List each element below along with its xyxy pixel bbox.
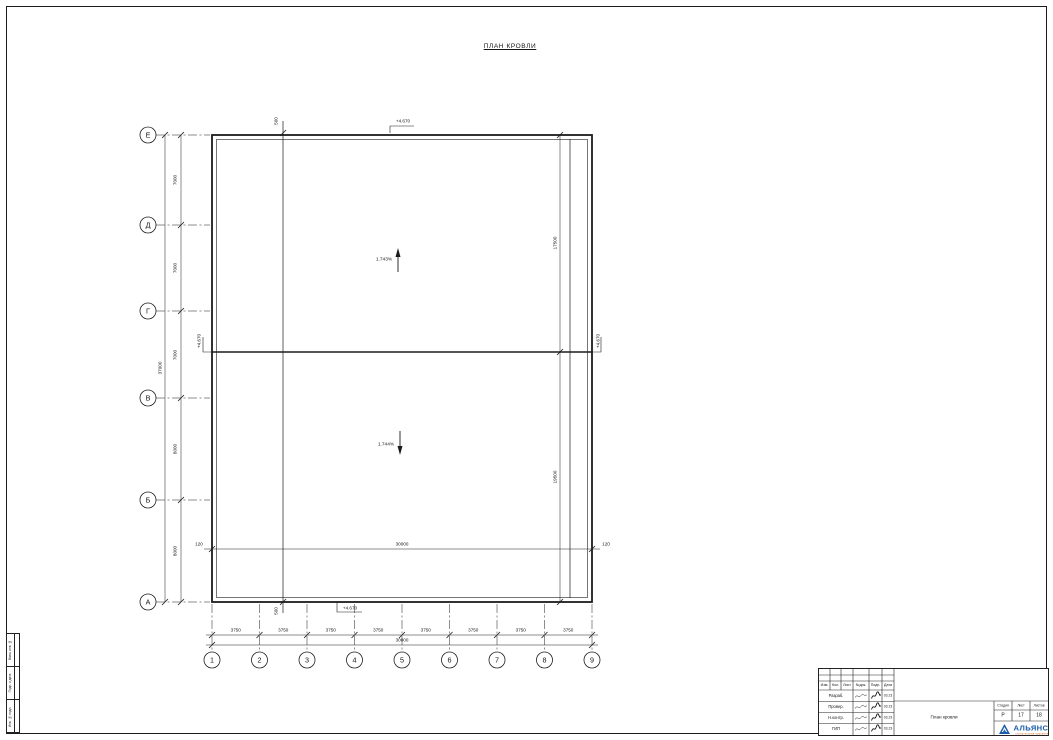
dim-label: 8000 — [174, 444, 179, 454]
slope-label: 1.743% — [376, 259, 392, 264]
axis-row-label: В — [146, 394, 151, 401]
name-scribble — [854, 726, 868, 733]
left-dim-lines — [165, 135, 181, 602]
dim-label: 500 — [275, 117, 280, 125]
name-scribble — [854, 692, 868, 699]
tb-date: 03.23 — [884, 716, 893, 719]
dim-label: 3750 — [516, 628, 526, 633]
tb-date: 03.23 — [884, 694, 893, 697]
tb-stage-label: Стадия — [997, 704, 1009, 707]
tb-header-sign: Подп. — [871, 684, 881, 688]
dim-label: 500 — [275, 607, 280, 615]
dim-label: 3750 — [326, 628, 336, 633]
axis-row-label: Е — [146, 131, 151, 138]
name-scribble — [854, 703, 868, 710]
tb-stage-value: Р — [1001, 713, 1004, 718]
tb-header-kol: Кол. — [832, 684, 839, 688]
axis-col-label: 5 — [400, 656, 404, 663]
tb-date: 03.23 — [884, 705, 893, 708]
drawing-sheet: ПЛАН КРОВЛИ ЕДГВБА1234567897000700070008… — [0, 0, 1053, 740]
axis-row-label: Г — [146, 307, 150, 314]
axis-col-label: 1 — [210, 656, 214, 663]
roof-internal-lines — [283, 121, 570, 613]
tb-role: Н.контр. — [828, 716, 844, 720]
axis-col-label: 2 — [258, 656, 262, 663]
row-axis-bubbles — [140, 127, 156, 610]
side-stamp-divider — [14, 634, 15, 666]
slope-arrowhead-up — [396, 248, 401, 257]
tb-header-list: Лист — [843, 684, 851, 688]
elevation-mark-label: +4.670 — [198, 334, 203, 348]
dim-label: 3750 — [563, 628, 573, 633]
roof-outline — [212, 135, 592, 602]
tb-role: Разраб. — [829, 694, 844, 698]
company-logo-subtitle: строительная компания — [1016, 732, 1049, 735]
elevation-mark-label: +4.670 — [597, 334, 602, 348]
roof-outline-inner — [217, 140, 588, 598]
axis-col-label: 3 — [305, 656, 309, 663]
side-stamp-divider — [14, 700, 15, 733]
dim-label: 3750 — [468, 628, 478, 633]
tb-sheet-value: 17 — [1018, 713, 1024, 718]
side-stamp-divider — [14, 667, 15, 699]
title-block: Изм. Кол. Лист №док. Подп. Дата Разраб. … — [818, 668, 1049, 736]
dim-total-label: 30000 — [396, 638, 409, 643]
side-stamp-label: Инв. № подл. — [8, 707, 12, 727]
dim-label: 3750 — [373, 628, 383, 633]
axis-row-label: Д — [146, 221, 151, 228]
tb-header-date: Дата — [884, 684, 892, 688]
elevation-mark-label: +4.670 — [396, 120, 410, 125]
tb-doc-name: План кровли — [930, 716, 957, 721]
drawing-title: ПЛАН КРОВЛИ — [440, 43, 580, 50]
signature-scribble — [870, 702, 881, 711]
dim-label: 3750 — [278, 628, 288, 633]
axis-row-label: А — [146, 598, 151, 605]
dim-label: 3750 — [231, 628, 241, 633]
name-scribble — [854, 715, 868, 722]
dim-label: 17500 — [554, 237, 559, 250]
elevation-mark-label: +4.670 — [343, 607, 357, 612]
col-axis-lines — [212, 604, 592, 651]
dim-label: 120 — [602, 543, 610, 548]
dim-total-label: 37000 — [159, 362, 164, 375]
tb-date: 03.23 — [884, 728, 893, 731]
side-stamp-cell: Инв. № подл. — [7, 700, 19, 733]
side-stamp-label: Взам. инв. № — [8, 640, 12, 660]
side-stamp-label: Подп. и дата — [8, 674, 12, 693]
tb-header-doc: №док. — [856, 684, 867, 688]
elevation-flags — [203, 126, 601, 612]
row-axis-lines — [156, 135, 210, 602]
axis-col-label: 9 — [590, 656, 594, 663]
company-logo-icon — [999, 724, 1010, 734]
side-stamp-cell: Подп. и дата — [7, 667, 19, 700]
axis-col-label: 4 — [353, 656, 357, 663]
axis-col-label: 6 — [448, 656, 452, 663]
dim-total-label: 30000 — [396, 542, 409, 547]
dim-label: 8000 — [174, 546, 179, 556]
tb-header-izm: Изм. — [821, 684, 829, 688]
dim-ticks — [162, 130, 595, 648]
tb-sheet-label: Лист — [1017, 704, 1024, 707]
tb-role: Провер. — [828, 705, 843, 709]
side-stamp: Взам. инв. № Подп. и дата Инв. № подл. — [6, 633, 20, 733]
tb-sheets-value: 18 — [1036, 713, 1042, 718]
axis-col-label: 7 — [495, 656, 499, 663]
slope-arrowhead-down — [398, 446, 403, 455]
dim-label: 120 — [195, 543, 203, 548]
dim-label: 7000 — [174, 263, 179, 273]
axis-row-label: Б — [146, 496, 151, 503]
dim-label: 19500 — [554, 471, 559, 484]
tb-role: ГИП — [832, 727, 840, 731]
axis-col-label: 8 — [543, 656, 547, 663]
signature-scribble — [870, 691, 881, 700]
signature-scribble — [870, 714, 881, 723]
tb-sheets-label: Листов — [1033, 704, 1044, 707]
dim-label: 7000 — [174, 349, 179, 359]
dim-label: 7000 — [174, 175, 179, 185]
dim-label: 3750 — [421, 628, 431, 633]
side-stamp-cell: Взам. инв. № — [7, 634, 19, 667]
slope-label: 1.744% — [378, 444, 394, 449]
signature-scribble — [870, 725, 881, 734]
